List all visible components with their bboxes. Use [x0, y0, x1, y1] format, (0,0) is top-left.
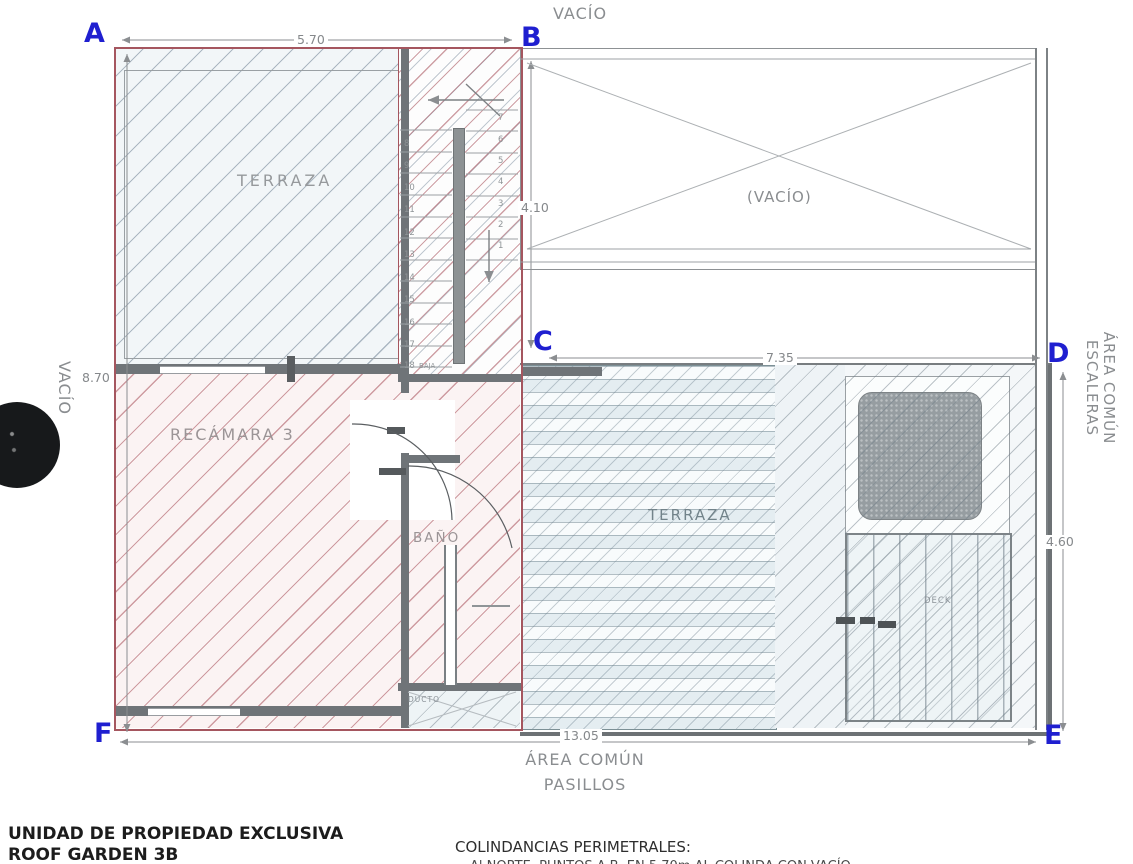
step-number: 1 [498, 242, 503, 251]
step-number: 7 [498, 114, 503, 123]
terraza-lower-label: TERRAZA [648, 506, 732, 524]
step-number: 4 [498, 178, 503, 187]
step-number: 15 [404, 296, 415, 305]
floorplan-canvas: A B C D E F 5.70 8.70 4.10 7.35 4.60 13.… [0, 0, 1133, 864]
step-number: 12 [404, 229, 415, 238]
step-number: 17 [404, 341, 415, 350]
point-e: E [1044, 722, 1062, 749]
dim-left: 8.70 [79, 371, 113, 385]
point-f: F [94, 720, 112, 747]
step-number: 13 [404, 251, 415, 260]
area-comun-pasillos-line2: PASILLOS [500, 773, 670, 798]
step-number: 8 [404, 140, 409, 149]
area-comun-pasillos-label: ÁREA COMÚN PASILLOS [500, 748, 670, 798]
dim-top: 5.70 [294, 33, 328, 47]
point-a: A [84, 20, 105, 47]
step-number: 3 [498, 200, 503, 209]
step-number: 5 [498, 157, 503, 166]
point-d: D [1047, 340, 1069, 367]
area-comun-pasillos-line1: ÁREA COMÚN [500, 748, 670, 773]
recamara-label: RECÁMARA 3 [170, 425, 295, 444]
step-number: 18 [404, 362, 415, 371]
unit-title: UNIDAD DE PROPIEDAD EXCLUSIVA ROOF GARDE… [8, 824, 343, 864]
step-number: 16 [404, 319, 415, 328]
dim-stair-void: 4.10 [518, 201, 552, 215]
area-comun-escaleras-line2: ESCALERAS [1083, 332, 1100, 445]
deck-label: DECK [924, 596, 951, 606]
ducto-label: DUCTO [408, 695, 440, 704]
step-number: 6 [498, 136, 503, 145]
colindancias-heading: COLINDANCIAS PERIMETRALES: [455, 838, 691, 856]
point-b: B [521, 24, 542, 51]
step-number: 11 [404, 206, 415, 215]
vacio-top-label: VACÍO [553, 5, 607, 23]
bano-label: BAÑO [413, 530, 460, 546]
area-comun-escaleras-line1: ÁREA COMÚN [1100, 332, 1117, 445]
dim-right: 4.60 [1043, 535, 1077, 549]
area-comun-escaleras-label: ÁREA COMÚN ESCALERAS [1030, 318, 1133, 458]
step-number: 10 [404, 184, 415, 193]
unit-title-line2: ROOF GARDEN 3B [8, 845, 343, 864]
step-number: 14 [404, 274, 415, 283]
unit-title-line1: UNIDAD DE PROPIEDAD EXCLUSIVA [8, 824, 343, 845]
colindancias-line1: Al NORTE, PUNTOS A-B, EN 5.70m AL COLIND… [470, 859, 851, 864]
dim-middle: 7.35 [763, 351, 797, 365]
step-baja-label: BAJA [419, 363, 435, 370]
terraza-upper-label: TERRAZA [237, 171, 332, 190]
vacio-center-label: (VACÍO) [747, 189, 812, 206]
step-number: 2 [498, 221, 503, 230]
dim-bottom: 13.05 [560, 729, 602, 743]
step-number: 9 [404, 162, 409, 171]
point-c: C [533, 328, 553, 355]
